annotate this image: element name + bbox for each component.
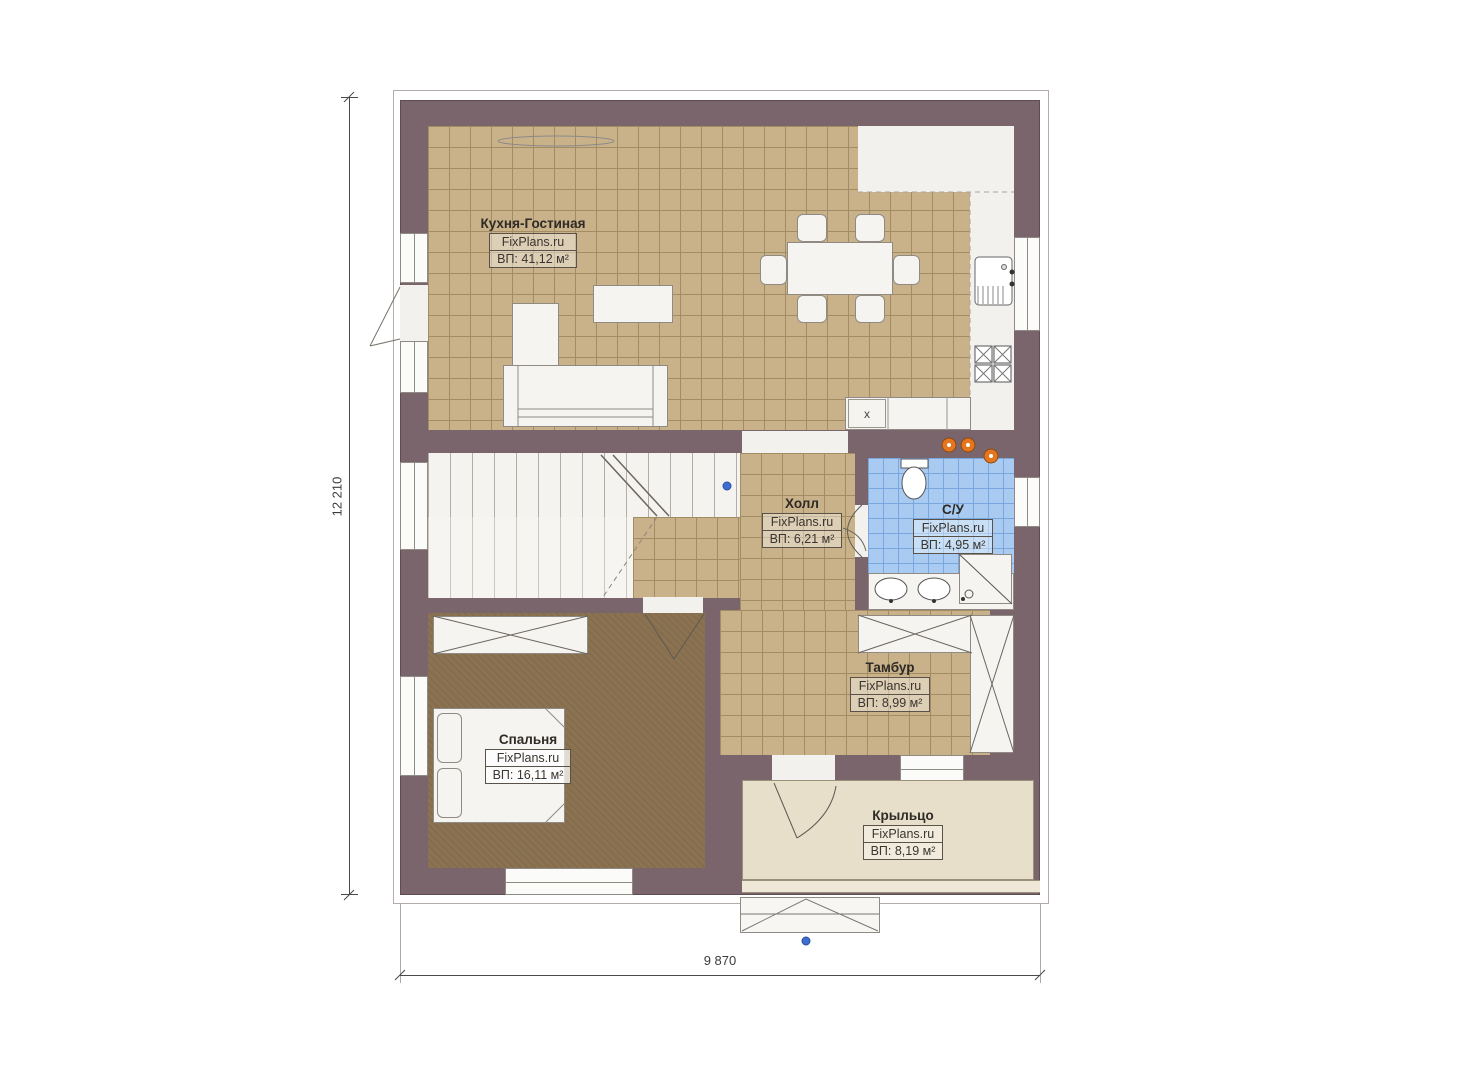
bedroom-window-left	[400, 676, 428, 776]
kitchen-hall-opening	[742, 431, 848, 454]
living-window-left-lower	[400, 341, 428, 393]
node-marker-blue	[802, 937, 810, 945]
label-bathroom: С/У FixPlans.ru ВП: 4,95 м²	[898, 502, 1008, 554]
kitchen-x-mark: x	[864, 407, 870, 421]
dining-chair	[797, 214, 827, 242]
stairs-lower-run	[428, 517, 633, 598]
bedroom-window-bottom	[505, 868, 633, 895]
wardrobe-x	[433, 616, 588, 654]
stairs-upper-run	[428, 453, 740, 517]
dimension-label-vertical: 12 210	[330, 457, 345, 537]
closet-x-top	[858, 615, 972, 653]
room-area: ВП: 4,95 м²	[914, 536, 993, 553]
room-area: ВП: 16,11 м²	[486, 766, 571, 783]
brand-watermark: FixPlans.ru	[490, 234, 576, 250]
brand-watermark: FixPlans.ru	[851, 678, 930, 694]
room-area: ВП: 41,12 м²	[490, 250, 576, 267]
extension-line	[400, 903, 401, 983]
kitchen-counter-x-cabinet: x	[848, 399, 886, 428]
hall-floor-by-stairs	[633, 517, 740, 598]
kitchen-counter-right	[970, 192, 1014, 430]
entry-door-opening	[772, 755, 835, 783]
living-window-left-upper	[400, 233, 428, 283]
brand-watermark: FixPlans.ru	[763, 514, 842, 530]
bathroom-window-right	[1014, 477, 1040, 527]
room-name: Холл	[747, 496, 857, 511]
dining-chair	[797, 295, 827, 323]
closet-x-right	[970, 615, 1014, 753]
bedroom-door-opening	[643, 597, 703, 613]
dim-cap	[341, 894, 358, 895]
dim-cap	[341, 97, 358, 98]
kitchen-window-right	[1014, 237, 1040, 331]
porch-edge	[742, 880, 1040, 893]
sofa-chaise	[512, 303, 559, 369]
dining-chair	[855, 214, 885, 242]
room-name: Крыльцо	[828, 808, 978, 823]
room-area: ВП: 6,21 м²	[763, 530, 842, 547]
dimension-line-vertical	[349, 97, 350, 895]
label-hall: Холл FixPlans.ru ВП: 6,21 м²	[747, 496, 857, 548]
shower-tray	[959, 554, 1012, 604]
sofa	[503, 365, 668, 427]
dimension-label-horizontal: 9 870	[660, 953, 780, 968]
kitchen-counter-top-right	[858, 126, 1014, 192]
extension-line	[1040, 903, 1041, 983]
dining-chair	[893, 255, 920, 285]
label-bedroom: Спальня FixPlans.ru ВП: 16,11 м²	[448, 732, 608, 784]
stairs-window-left	[400, 462, 428, 550]
room-area: ВП: 8,99 м²	[851, 694, 930, 711]
dining-chair	[855, 295, 885, 323]
floor-plan-canvas: x Кухня-Гостиная Fi	[0, 0, 1474, 1080]
room-name: С/У	[898, 502, 1008, 517]
room-name: Спальня	[448, 732, 608, 747]
dining-table	[787, 242, 893, 295]
label-vestibule: Тамбур FixPlans.ru ВП: 8,99 м²	[830, 660, 950, 712]
room-name: Тамбур	[830, 660, 950, 675]
label-kitchen-living: Кухня-Гостиная FixPlans.ru ВП: 41,12 м²	[463, 216, 603, 268]
vestibule-window	[900, 755, 964, 783]
brand-watermark: FixPlans.ru	[914, 520, 993, 536]
brand-watermark: FixPlans.ru	[864, 826, 943, 842]
brand-watermark: FixPlans.ru	[486, 750, 571, 766]
entry-steps	[740, 897, 880, 933]
terrace-door-opening	[400, 285, 428, 341]
room-area: ВП: 8,19 м²	[864, 842, 943, 859]
coffee-table	[593, 285, 673, 323]
room-name: Кухня-Гостиная	[463, 216, 603, 231]
dining-chair	[760, 255, 787, 285]
label-porch: Крыльцо FixPlans.ru ВП: 8,19 м²	[828, 808, 978, 860]
dimension-line-horizontal	[400, 975, 1040, 976]
